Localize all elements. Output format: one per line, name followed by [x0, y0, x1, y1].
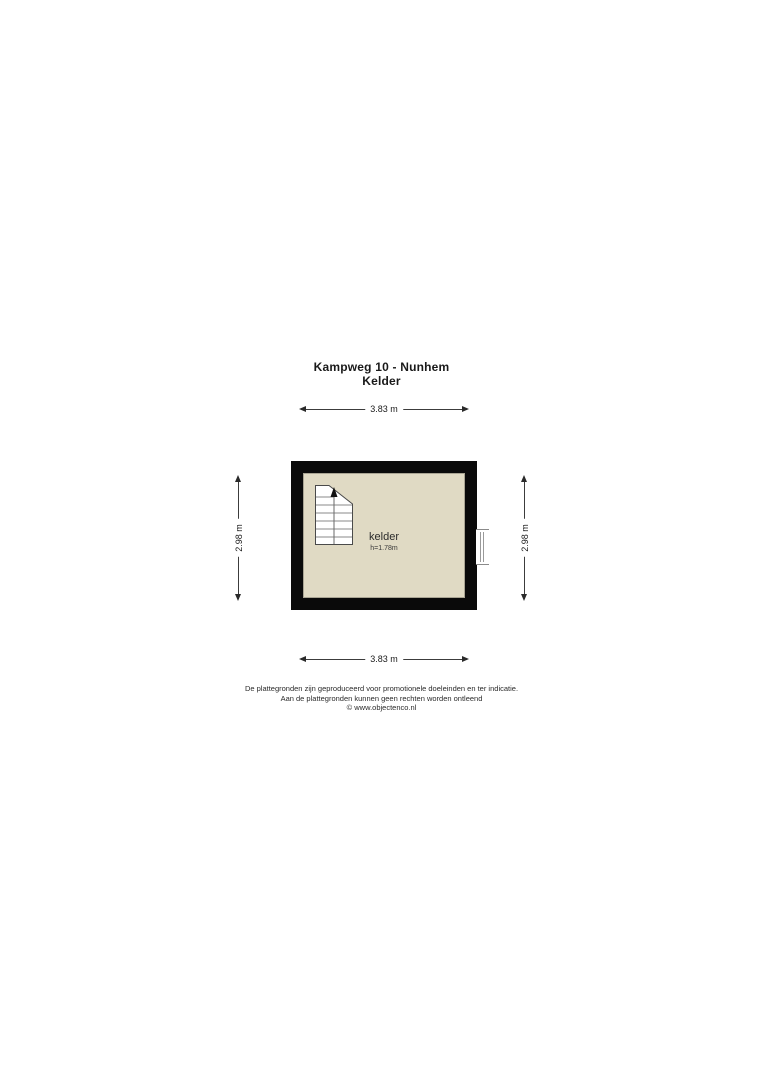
dimension-left-label: 2.98 m [234, 519, 244, 557]
arrow-left-icon [299, 406, 306, 412]
dimension-bottom: 3.83 m [299, 653, 469, 667]
arrow-down-icon [235, 594, 241, 601]
title-block: Kampweg 10 - Nunhem Kelder [0, 360, 763, 388]
arrow-right-icon [462, 656, 469, 662]
arrow-left-icon [299, 656, 306, 662]
dimension-top: 3.83 m [299, 403, 469, 417]
disclaimer-line-1: De plattegronden zijn geproduceerd voor … [0, 684, 763, 694]
arrow-up-icon [521, 475, 527, 482]
page-title-floor: Kelder [0, 374, 763, 388]
arrow-up-icon [235, 475, 241, 482]
room-name-label: kelder [303, 531, 465, 544]
dimension-right: 2.98 m [518, 475, 532, 601]
disclaimer-line-2: Aan de plattegronden kunnen geen rechten… [0, 694, 763, 704]
dimension-bottom-label: 3.83 m [365, 654, 403, 664]
dimension-top-label: 3.83 m [365, 404, 403, 414]
footer-disclaimer: De plattegronden zijn geproduceerd voor … [0, 684, 763, 713]
page-title-address: Kampweg 10 - Nunhem [0, 360, 763, 374]
disclaimer-copyright: © www.objectenco.nl [0, 703, 763, 713]
room-height-label: h=1.78m [303, 544, 465, 553]
floorplan-walls: kelder h=1.78m [291, 461, 477, 610]
floorplan-page: Kampweg 10 - Nunhem Kelder 3.83 m 2.98 m… [0, 0, 763, 1080]
room-label-group: kelder h=1.78m [303, 531, 465, 553]
window-glass [480, 532, 484, 562]
window-icon [476, 529, 489, 565]
arrow-down-icon [521, 594, 527, 601]
dimension-right-label: 2.98 m [520, 519, 530, 557]
dimension-left: 2.98 m [232, 475, 246, 601]
arrow-right-icon [462, 406, 469, 412]
room-kelder: kelder h=1.78m [303, 473, 465, 598]
